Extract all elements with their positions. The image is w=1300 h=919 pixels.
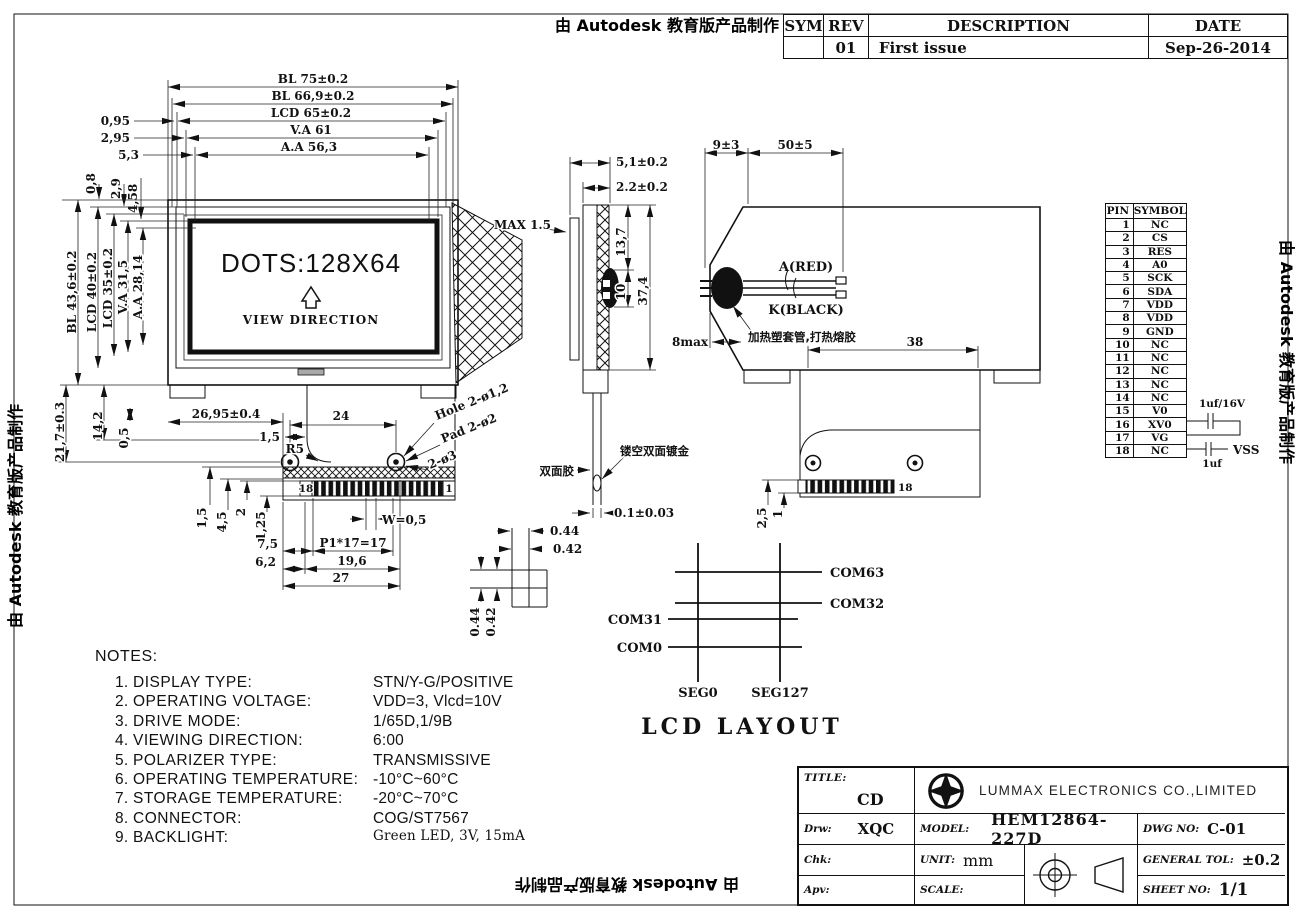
- note-label: BACKLIGHT:: [125, 828, 373, 847]
- dim-9: 9±3: [713, 138, 740, 152]
- pin-number: 16: [1106, 418, 1134, 431]
- note-value: 6:00: [373, 731, 575, 750]
- seg0-label: SEG0: [678, 686, 717, 701]
- dim-bl2-width: BL 66,9±0.2: [272, 89, 355, 103]
- note-label: CONNECTOR:: [125, 809, 373, 828]
- pin-number: 17: [1106, 431, 1134, 444]
- rev-description-value: First issue: [868, 37, 1148, 59]
- rev-header-rev: REV: [823, 15, 868, 37]
- note-number: 5.: [95, 751, 125, 770]
- pin-row: 7VDD: [1106, 298, 1187, 311]
- seg127-label: SEG127: [751, 686, 809, 701]
- apv-cell: Apv:: [799, 876, 915, 904]
- dim-62: 6,2: [255, 555, 276, 569]
- dim-50: 50±5: [777, 138, 812, 152]
- note-label: OPERATING VOLTAGE:: [125, 692, 373, 711]
- model-cell: MODEL: HEM12864-227D: [915, 814, 1138, 845]
- pin-number: 7: [1106, 298, 1134, 311]
- dim-offset-458: 4,58: [126, 184, 140, 213]
- pin-symbol: VDD: [1133, 312, 1186, 325]
- company-logo-icon: [927, 772, 965, 810]
- dim-max15: MAX 1.5: [494, 218, 551, 232]
- note-label: OPERATING TEMPERATURE:: [125, 770, 373, 789]
- notes-title: NOTES:: [95, 648, 575, 666]
- tolerance-label: GENERAL TOL:: [1143, 854, 1234, 866]
- pin-symbol: SDA: [1133, 285, 1186, 298]
- tolerance-cell: GENERAL TOL: ±0.2: [1138, 845, 1285, 876]
- dim-1: 1: [771, 510, 785, 518]
- dim-lcd-height: LCD 40±0.2: [85, 252, 99, 332]
- note-value: Green LED, 3V, 15mA: [373, 828, 575, 847]
- dim-8max: 8max: [672, 335, 709, 349]
- pin-symbol: VDD: [1133, 298, 1186, 311]
- cathode-wire-label: K(BLACK): [768, 303, 843, 318]
- symbol-header: SYMBOL: [1133, 204, 1186, 219]
- rev-header-sym: SYM: [784, 15, 824, 37]
- dim-137: 13,7: [614, 227, 628, 256]
- com32-label: COM32: [830, 597, 884, 612]
- side-view: 5,1±0.2 2.2±0.2 MAX 1.5 13,7 10 37,4 0.1…: [494, 155, 689, 520]
- pin-row: 16XV0: [1106, 418, 1187, 431]
- dim-05: 0,5: [117, 428, 131, 449]
- note-value: TRANSMISSIVE: [373, 751, 575, 770]
- pin-row: 14NC: [1106, 391, 1187, 404]
- company-cell: LUMMAX ELECTRONICS CO.,LIMITED: [915, 768, 1285, 814]
- dim-15a: 1,5: [259, 430, 280, 444]
- watermark-left: 由 Autodesk 教育版产品制作: [2, 328, 26, 628]
- pin-symbol: NC: [1133, 338, 1186, 351]
- projection-symbol-cell: [1025, 845, 1138, 904]
- dim-27: 27: [333, 571, 350, 585]
- rev-header-description: DESCRIPTION: [868, 15, 1148, 37]
- engineering-drawing-sheet: { "watermark": "由 Autodesk 教育版产品制作", "re…: [0, 0, 1300, 919]
- scale-cell: SCALE:: [915, 876, 1025, 904]
- cap1-label: 1uf/16V: [1199, 398, 1246, 410]
- drw-value: XQC: [858, 820, 895, 838]
- pin-row: 10NC: [1106, 338, 1187, 351]
- note-item: 4.VIEWING DIRECTION:6:00: [95, 731, 575, 750]
- title-cell: TITLE: CD: [799, 768, 915, 814]
- dim-45: 4,5: [215, 512, 229, 533]
- dim-2695: 26,95±0.4: [192, 407, 261, 421]
- note-label: DRIVE MODE:: [125, 712, 373, 731]
- dim-p17: P1*17=17: [319, 536, 386, 550]
- note-item: 8.CONNECTOR:COG/ST7567: [95, 809, 575, 828]
- sheet-label: SHEET NO:: [1143, 884, 1211, 896]
- title-label: TITLE:: [804, 772, 847, 784]
- pin-table-header: PIN SYMBOL: [1106, 204, 1187, 219]
- note-value: 1/65D,1/9B: [373, 712, 575, 731]
- pin-row: 11NC: [1106, 351, 1187, 364]
- wire-grommet: [711, 267, 743, 309]
- pin-row: 1NC: [1106, 219, 1187, 232]
- fpc-bend: [307, 385, 331, 462]
- connector-pin18-label: 18: [299, 483, 314, 495]
- pin-row: 4A0: [1106, 258, 1187, 271]
- dwg-label: DWG NO:: [1143, 823, 1199, 835]
- pin-row: 8VDD: [1106, 312, 1187, 325]
- revision-table: SYM REV DESCRIPTION DATE 01 First issue …: [783, 14, 1288, 59]
- rear-view: 9±3 50±5 A(RED) K(BLACK) 加热塑套管,打热熔胶 8max…: [672, 138, 1040, 528]
- pin-symbol: GND: [1133, 325, 1186, 338]
- pin-number: 18: [1106, 445, 1134, 458]
- lcd-glass-side: [583, 205, 597, 370]
- note-label: DISPLAY TYPE:: [125, 673, 373, 692]
- dim-dot-pitch-y: 0.44: [468, 607, 482, 636]
- gold-plated-hole: [593, 475, 601, 491]
- dim-10: 10: [614, 284, 628, 301]
- anode-wire-label: A(RED): [778, 260, 833, 275]
- lcd-layout-lines: [668, 543, 822, 682]
- drw-cell: Drw: XQC: [799, 814, 915, 845]
- unit-cell: UNIT: mm: [915, 845, 1025, 876]
- pin-number: 15: [1106, 405, 1134, 418]
- display-tab: [298, 369, 324, 375]
- dim-hole: Hole 2-ø1,2: [433, 381, 511, 423]
- dim-thickness-51: 5,1±0.2: [616, 155, 668, 169]
- dim-15b: 1,5: [195, 508, 209, 529]
- unit-value: mm: [963, 851, 993, 870]
- dim-lcd2-height: LCD 35±0.2: [101, 248, 115, 328]
- dim-va-width: V.A 61: [289, 123, 332, 137]
- note-number: 8.: [95, 809, 125, 828]
- title-block: TITLE: CD LUMMAX ELECTRONICS CO.,LIMITED…: [797, 766, 1289, 906]
- dim-fpc-thickness: 0.1±0.03: [614, 506, 674, 520]
- note-label: POLARIZER TYPE:: [125, 751, 373, 770]
- pin-row: 9GND: [1106, 325, 1187, 338]
- dim-offset-08: 0,8: [84, 173, 98, 194]
- pin-symbol: RES: [1133, 245, 1186, 258]
- dim-offset-095: 0,95: [101, 114, 130, 128]
- pin-symbol: VG: [1133, 431, 1186, 444]
- pin-row: 3RES: [1106, 245, 1187, 258]
- dim-dot-size-y: 0.42: [484, 607, 498, 636]
- unit-label: UNIT:: [920, 854, 955, 866]
- rear-pcb-tab: [800, 370, 980, 497]
- dim-bl-height: BL 43,6±0.2: [65, 251, 79, 334]
- note-number: 9.: [95, 828, 125, 847]
- dim-24: 24: [333, 409, 350, 423]
- dim-offset-53: 5,3: [118, 148, 139, 162]
- pin-row: 17VG: [1106, 431, 1187, 444]
- company-name: LUMMAX ELECTRONICS CO.,LIMITED: [979, 783, 1257, 798]
- dim-374: 37,4: [636, 276, 650, 305]
- rev-rev-value: 01: [823, 37, 868, 59]
- display-bezel: [190, 221, 437, 352]
- dim-thickness-22: 2.2±0.2: [616, 180, 668, 194]
- projection-symbol-icon: [1027, 850, 1135, 900]
- chk-cell: Chk:: [799, 845, 915, 876]
- pin-symbol: CS: [1133, 232, 1186, 245]
- note-item: 6.OPERATING TEMPERATURE:-10°C~60°C: [95, 770, 575, 789]
- pin-row: 18NC: [1106, 445, 1187, 458]
- title-value: CD: [857, 790, 884, 809]
- pin-number: 9: [1106, 325, 1134, 338]
- pin-row: 12NC: [1106, 365, 1187, 378]
- watermark-right: 由 Autodesk 教育版产品制作: [1276, 240, 1300, 592]
- mounting-feet: [170, 385, 456, 398]
- apv-label: Apv:: [804, 884, 829, 896]
- lcd-layout-title: LCD LAYOUT: [641, 714, 843, 740]
- tape-annotation: 双面胶: [539, 464, 575, 478]
- dim-va-height: V.A 31,5: [116, 260, 130, 315]
- dim-dot-size-x: 0.42: [553, 542, 582, 556]
- dim-75: 7,5: [257, 537, 278, 551]
- model-label: MODEL:: [920, 823, 969, 835]
- pin-symbol: A0: [1133, 258, 1186, 271]
- cap2-label: 1uf: [1202, 458, 1223, 470]
- pin-symbol: NC: [1133, 445, 1186, 458]
- dim-25: 2,5: [755, 508, 769, 529]
- connector-pins: [312, 481, 443, 496]
- note-item: 3.DRIVE MODE:1/65D,1/9B: [95, 712, 575, 731]
- lcd-layout-diagram: COM63 COM32 COM31 COM0 SEG0 SEG127 LCD L…: [608, 543, 884, 740]
- pixel-detail: 0.44 0.42 0.44 0.42: [468, 524, 582, 637]
- pin-number: 4: [1106, 258, 1134, 271]
- rev-header-date: DATE: [1149, 15, 1288, 37]
- pixel-grid: [470, 528, 547, 607]
- note-label: VIEWING DIRECTION:: [125, 731, 373, 750]
- drw-label: Drw:: [804, 823, 832, 835]
- pin-symbol: NC: [1133, 219, 1186, 232]
- sheet-cell: SHEET NO: 1/1: [1138, 876, 1285, 904]
- dim-bl-width: BL 75±0.2: [278, 72, 348, 86]
- cap2-circuit: [1187, 442, 1228, 456]
- pin-symbol: NC: [1133, 365, 1186, 378]
- watermark-top: 由 Autodesk 教育版产品制作: [483, 12, 779, 36]
- note-label: STORAGE TEMPERATURE:: [125, 789, 373, 808]
- sheet-value: 1/1: [1219, 880, 1249, 900]
- display-dots-label: DOTS:128X64: [221, 248, 401, 278]
- note-value: COG/ST7567: [373, 809, 575, 828]
- note-item: 9.BACKLIGHT:Green LED, 3V, 15mA: [95, 828, 575, 847]
- note-number: 3.: [95, 712, 125, 731]
- view-direction-label: VIEW DIRECTION: [242, 313, 379, 327]
- gold-annotation: 镂空双面镀金: [620, 444, 689, 458]
- rear-feet: [744, 370, 1040, 383]
- backlight-wires: [743, 281, 836, 295]
- rev-date-value: Sep-26-2014: [1149, 37, 1288, 59]
- pin-row: 5SCK: [1106, 272, 1187, 285]
- pin-row: 15V0: [1106, 405, 1187, 418]
- note-number: 1.: [95, 673, 125, 692]
- pin-symbol: NC: [1133, 391, 1186, 404]
- pin-number: 12: [1106, 365, 1134, 378]
- pin-number: 3: [1106, 245, 1134, 258]
- note-number: 4.: [95, 731, 125, 750]
- pin-number: 10: [1106, 338, 1134, 351]
- pin-number: 11: [1106, 351, 1134, 364]
- rev-sym-value: [784, 37, 824, 59]
- notes-section: NOTES: 1.DISPLAY TYPE:STN/Y-G/POSITIVE 2…: [95, 648, 575, 848]
- com0-label: COM0: [617, 641, 662, 656]
- dwg-value: C-01: [1207, 820, 1246, 838]
- model-value: HEM12864-227D: [991, 814, 1137, 845]
- watermark-bottom: 由 Autodesk 教育版产品制作: [452, 874, 802, 898]
- pin-number: 13: [1106, 378, 1134, 391]
- note-value: VDD=3, Vlcd=10V: [373, 692, 575, 711]
- rear-connector-pins: [806, 480, 894, 493]
- capacitor-wiring: 1uf/16V VSS 1uf: [1187, 398, 1259, 470]
- revision-row: 01 First issue Sep-26-2014: [784, 37, 1288, 59]
- dim-lcd-width: LCD 65±0.2: [271, 106, 351, 120]
- com31-label: COM31: [608, 613, 662, 628]
- note-value: -10°C~60°C: [373, 770, 575, 789]
- pin-number: 1: [1106, 219, 1134, 232]
- pin-number: 2: [1106, 232, 1134, 245]
- pin-row: 13NC: [1106, 378, 1187, 391]
- note-item: 5.POLARIZER TYPE:TRANSMISSIVE: [95, 751, 575, 770]
- dwg-cell: DWG NO: C-01: [1138, 814, 1285, 845]
- pin-number: 6: [1106, 285, 1134, 298]
- chk-label: Chk:: [804, 854, 831, 866]
- dim-142: 14,2: [91, 411, 105, 440]
- note-item: 2.OPERATING VOLTAGE:VDD=3, Vlcd=10V: [95, 692, 575, 711]
- revision-header-row: SYM REV DESCRIPTION DATE: [784, 15, 1288, 37]
- note-number: 2.: [95, 692, 125, 711]
- dim-offset-29: 2,9: [109, 178, 123, 199]
- dim-38: 38: [907, 335, 924, 349]
- pin-row: 2CS: [1106, 232, 1187, 245]
- cap1-circuit: [1187, 413, 1240, 435]
- sleeve-annotation: 加热塑套管,打热熔胶: [747, 330, 856, 344]
- dim-dot-pitch-x: 0.44: [550, 524, 579, 538]
- pin-header: PIN: [1106, 204, 1134, 219]
- dim-r5: R5: [286, 442, 304, 456]
- note-number: 7.: [95, 789, 125, 808]
- pin-table: PIN SYMBOL 1NC 2CS 3RES 4A0 5SCK 6SDA 7V…: [1105, 203, 1187, 458]
- pin-row: 6SDA: [1106, 285, 1187, 298]
- dim-196: 19,6: [337, 554, 366, 568]
- com63-label: COM63: [830, 566, 884, 581]
- rear-pin18-label: 18: [898, 482, 913, 494]
- pin-symbol: NC: [1133, 351, 1186, 364]
- front-view: DOTS:128X64 VIEW DIRECTION: [168, 200, 522, 500]
- pin-symbol: NC: [1133, 378, 1186, 391]
- connector-pin1-label: 1: [445, 483, 452, 495]
- pin-symbol: XV0: [1133, 418, 1186, 431]
- note-value: STN/Y-G/POSITIVE: [373, 673, 575, 692]
- note-value: -20°C~70°C: [373, 789, 575, 808]
- dim-offset-295: 2,95: [101, 131, 130, 145]
- dim-w05: W=0,5: [381, 513, 426, 527]
- pin-number: 14: [1106, 391, 1134, 404]
- note-item: 1.DISPLAY TYPE:STN/Y-G/POSITIVE: [95, 673, 575, 692]
- pin-number: 8: [1106, 312, 1134, 325]
- tolerance-value: ±0.2: [1242, 851, 1281, 869]
- vss-label: VSS: [1232, 443, 1259, 457]
- note-number: 6.: [95, 770, 125, 789]
- note-item: 7.STORAGE TEMPERATURE:-20°C~70°C: [95, 789, 575, 808]
- pin-symbol: SCK: [1133, 272, 1186, 285]
- dim-aa-width: A.A 56,3: [280, 140, 337, 154]
- dim-tail-height: 21,7±0.3: [53, 402, 67, 462]
- polarizer-film: [570, 218, 579, 360]
- dim-2: 2: [234, 508, 248, 516]
- pin-symbol: V0: [1133, 405, 1186, 418]
- scale-label: SCALE:: [920, 884, 963, 896]
- pin-number: 5: [1106, 272, 1134, 285]
- dim-aa-height: A.A 28,14: [131, 255, 145, 321]
